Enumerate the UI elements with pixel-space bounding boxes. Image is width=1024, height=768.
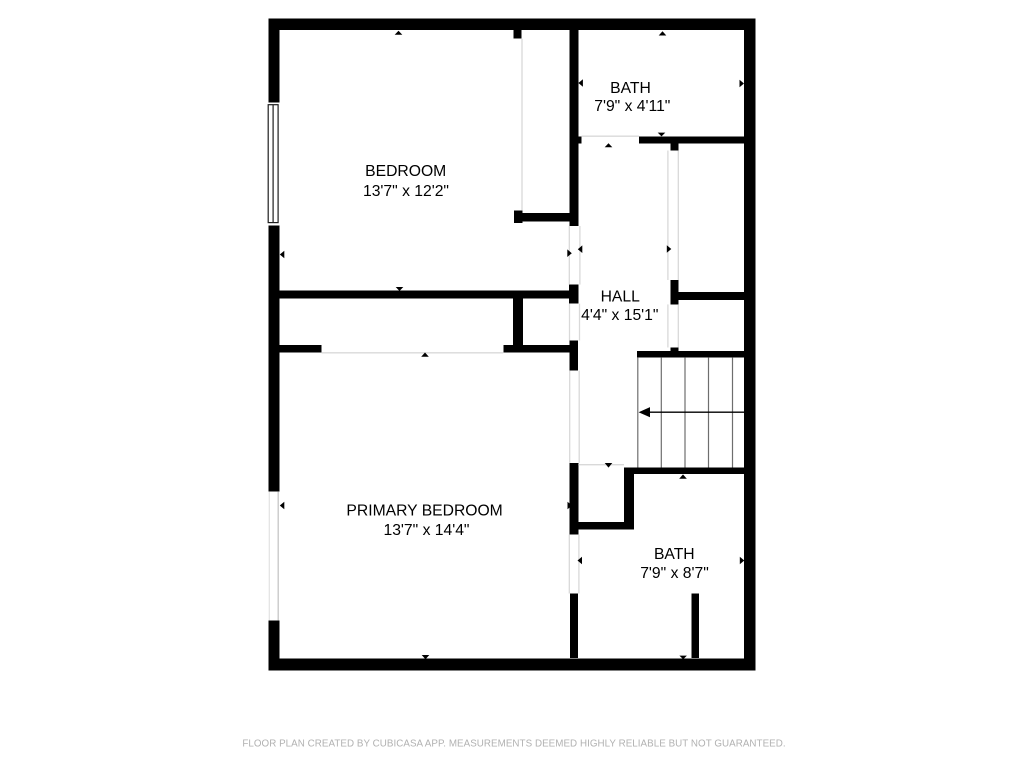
svg-text:BATH: BATH: [610, 80, 651, 97]
svg-text:BEDROOM: BEDROOM: [365, 163, 446, 180]
svg-text:13'7" x 12'2": 13'7" x 12'2": [363, 183, 449, 200]
svg-text:FLOOR PLAN CREATED BY CUBICASA: FLOOR PLAN CREATED BY CUBICASA APP. MEAS…: [242, 739, 785, 750]
svg-text:BATH: BATH: [654, 546, 695, 563]
svg-text:7'9" x 8'7": 7'9" x 8'7": [640, 565, 709, 582]
svg-text:HALL: HALL: [601, 289, 641, 306]
svg-text:7'9" x 4'11": 7'9" x 4'11": [594, 98, 670, 115]
svg-text:4'4" x 15'1": 4'4" x 15'1": [581, 307, 658, 324]
svg-text:13'7" x 14'4": 13'7" x 14'4": [383, 522, 469, 539]
svg-text:PRIMARY BEDROOM: PRIMARY BEDROOM: [346, 502, 502, 519]
